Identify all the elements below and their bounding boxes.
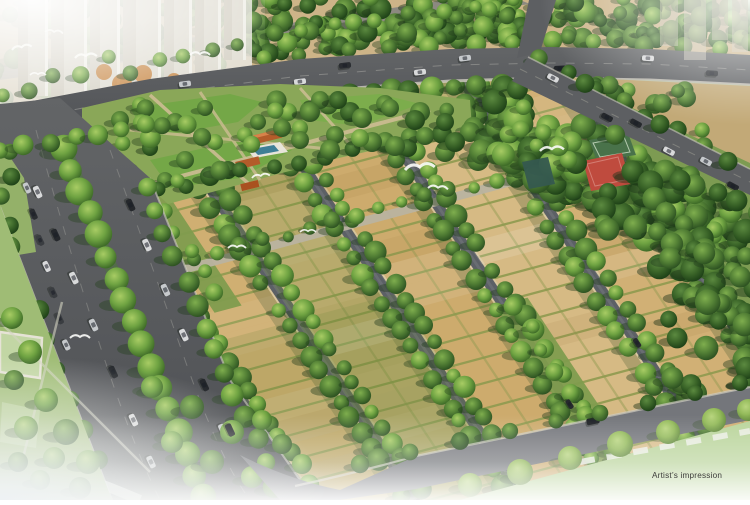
svg-text:Artist’s impression: Artist’s impression [652, 471, 722, 480]
